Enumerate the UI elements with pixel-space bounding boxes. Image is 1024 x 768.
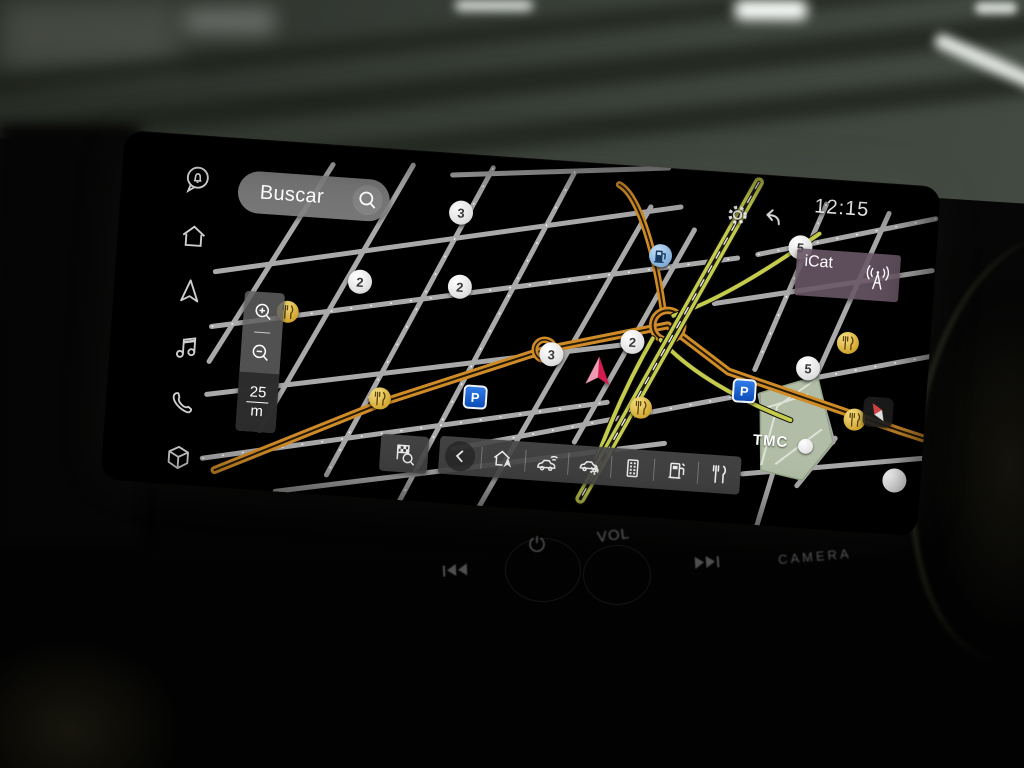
fluorescent-lamp	[185, 8, 275, 34]
poi-restaurant[interactable]	[368, 387, 391, 410]
radio-station-name: iCat	[804, 253, 834, 273]
previous-track-button[interactable]	[443, 563, 468, 576]
destination-search-button[interactable]	[379, 434, 429, 474]
poi-label: 5	[804, 360, 812, 375]
poi-circle-3[interactable]: 3	[448, 200, 474, 226]
poi-circle-5[interactable]: 5	[795, 355, 821, 381]
poi-fuel[interactable]	[648, 243, 673, 268]
car-services-button[interactable]	[571, 449, 609, 481]
power-button[interactable]	[527, 534, 547, 559]
antenna-icon	[858, 260, 897, 301]
poi-label: P	[739, 383, 749, 399]
poi-parking-P[interactable]: P	[462, 384, 488, 410]
fuel-stations-button[interactable]	[657, 455, 695, 487]
poi-restaurant[interactable]	[629, 396, 652, 419]
poi-circle-2[interactable]: 2	[620, 329, 646, 355]
online-traffic-button[interactable]	[528, 446, 566, 478]
back-button[interactable]	[441, 440, 479, 472]
restaurants-button[interactable]	[700, 458, 738, 490]
home-icon[interactable]	[178, 220, 210, 252]
poi-circle-3[interactable]: 3	[539, 341, 565, 367]
scale-unit: m	[250, 402, 264, 420]
fluorescent-lamp	[975, 2, 1017, 14]
poi-parking-P[interactable]: P	[732, 378, 758, 404]
city-buildings-button[interactable]	[614, 452, 652, 484]
poi-label: 2	[456, 279, 464, 294]
poi-vehicle	[584, 355, 612, 387]
volume-knob[interactable]	[583, 545, 651, 605]
search-icon[interactable]	[352, 184, 384, 216]
poi-label: 3	[457, 205, 465, 220]
radio-station-badge[interactable]: iCat	[794, 248, 901, 302]
next-triangle-icon	[695, 556, 705, 569]
prev-triangle-icon	[447, 564, 457, 576]
zoom-in-button[interactable]	[242, 291, 285, 334]
tmc-label: TMC	[752, 432, 789, 451]
poi-restaurant[interactable]	[836, 331, 859, 354]
map-scale-indicator: 25 m	[235, 372, 279, 434]
infotainment-screen: 3225235PP TMC	[101, 130, 941, 536]
search-label: Buscar	[259, 181, 324, 208]
poi-label: P	[470, 389, 480, 405]
route-home-button[interactable]	[484, 443, 522, 475]
scale-value: 25	[246, 384, 270, 403]
divider	[524, 450, 527, 472]
fluorescent-lamp	[735, 0, 807, 20]
fluorescent-lamp	[455, 0, 533, 11]
voice-assistant-icon[interactable]	[182, 164, 214, 196]
divider	[481, 447, 484, 469]
divider	[653, 459, 656, 481]
settings-gear-icon[interactable]	[724, 201, 752, 229]
divider	[567, 453, 570, 475]
poi-circle[interactable]	[882, 468, 908, 494]
poi-label: 3	[547, 347, 555, 362]
poi-circle-small[interactable]	[798, 438, 814, 454]
phone-icon[interactable]	[166, 386, 198, 418]
media-icon[interactable]	[170, 331, 202, 363]
prev-triangle-icon	[458, 563, 468, 575]
poi-compass[interactable]	[862, 396, 894, 428]
divider	[610, 456, 613, 478]
photo-scene: 3225235PP TMC	[0, 0, 1024, 768]
back-chevron-icon	[444, 440, 476, 472]
poi-label: 2	[356, 274, 364, 289]
poi-label: 2	[628, 334, 636, 349]
turn-arrow-icon[interactable]	[756, 204, 784, 232]
prev-bar-icon	[443, 565, 446, 576]
zoom-out-button[interactable]	[239, 332, 282, 375]
next-triangle-icon	[706, 555, 716, 568]
navigation-icon[interactable]	[174, 275, 206, 307]
apps-cube-icon[interactable]	[162, 441, 194, 473]
next-track-button[interactable]	[695, 555, 720, 569]
poi-circle-2[interactable]: 2	[347, 269, 373, 295]
poi-circle-2[interactable]: 2	[447, 274, 473, 300]
divider	[696, 462, 699, 484]
